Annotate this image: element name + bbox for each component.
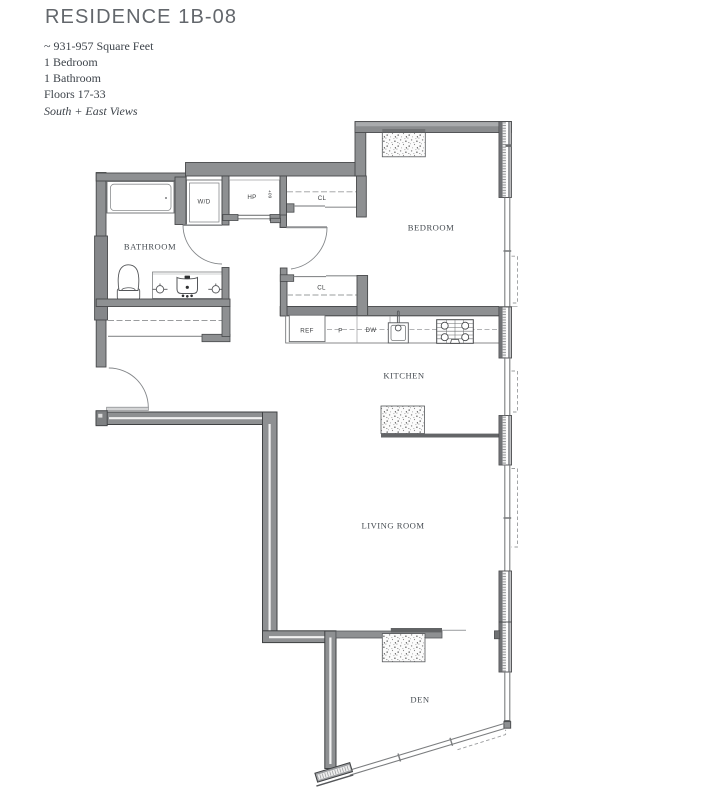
svg-text:DW: DW [365,327,376,334]
svg-text:W/D: W/D [197,199,210,206]
svg-text:LIVING ROOM: LIVING ROOM [361,521,424,531]
svg-text:BATHROOM: BATHROOM [124,242,176,252]
svg-text:CL: CL [318,195,327,202]
svg-text:60+: 60+ [268,190,274,199]
svg-text:P: P [338,327,342,334]
svg-text:KITCHEN: KITCHEN [383,371,425,381]
svg-text:CL: CL [317,284,326,291]
svg-text:HP: HP [247,194,256,201]
svg-text:BEDROOM: BEDROOM [408,223,454,233]
svg-text:REF: REF [300,327,313,334]
svg-text:DEN: DEN [410,695,429,705]
